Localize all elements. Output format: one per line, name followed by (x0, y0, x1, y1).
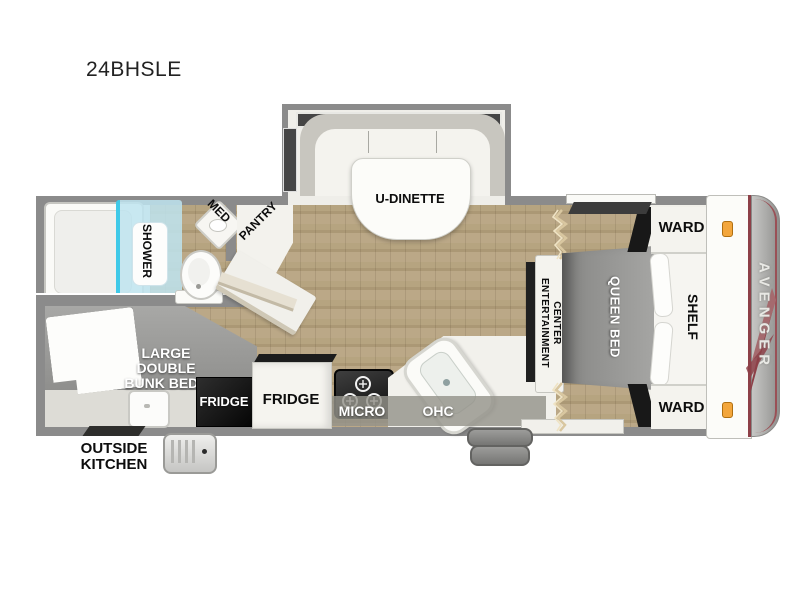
shelf-label: SHELF (686, 294, 700, 340)
model-title: 24BHSLE (86, 58, 182, 82)
entertainment-label-line2: CENTER (551, 301, 561, 345)
outside-kitchen-door-latch (202, 449, 207, 454)
bedroom-window (568, 202, 652, 214)
kitchen-fridge-label: FRIDGE (252, 392, 330, 407)
micro-label: MICRO (332, 404, 392, 418)
outside-kitchen-sink (128, 390, 170, 428)
marker-light-top (722, 221, 733, 237)
wardrobe-bottom-label: WARD (651, 400, 712, 415)
dinette-label: U-DINETTE (351, 192, 469, 205)
underbody-hatch (82, 426, 145, 436)
dinette-seat-divider (436, 131, 437, 153)
toilet-hinge (196, 284, 201, 289)
marker-light-bottom (722, 402, 733, 418)
outside-kitchen-sink-drain (144, 404, 150, 408)
tv-panel (526, 262, 535, 382)
curtain-zigzag-icon (552, 208, 570, 260)
entry-door-threshold (521, 419, 624, 434)
shower-label: SHOWER (141, 224, 153, 278)
kitchen-faucet (443, 379, 450, 386)
floorplan-diagram: 24BHSLE U-DINETTE SHOWER MED PANTRY LARG… (0, 0, 800, 600)
brand-label: AVENGER (757, 262, 772, 370)
outside-kitchen-label-line2: KITCHEN (64, 457, 164, 472)
outside-kitchen-label-line1: OUTSIDE (64, 441, 164, 456)
wardrobe-top-label: WARD (651, 220, 712, 235)
entry-step-lower (470, 445, 530, 466)
bunk-label-line1: LARGE (100, 346, 232, 360)
entertainment-label-line1: ENTERTAINMENT (539, 278, 549, 368)
ohc-label: OHC (408, 404, 468, 418)
curtain-zigzag-icon (552, 382, 570, 432)
dinette-window-left (283, 128, 297, 192)
queen-bed-label: QUEEN BED (609, 276, 622, 358)
bunk-label-line2: DOUBLE (100, 361, 232, 375)
outside-kitchen-door-vents (171, 440, 195, 463)
dinette-seat-divider (368, 131, 369, 153)
outside-fridge-label: FRIDGE (196, 395, 252, 408)
toilet-seat (188, 258, 210, 286)
